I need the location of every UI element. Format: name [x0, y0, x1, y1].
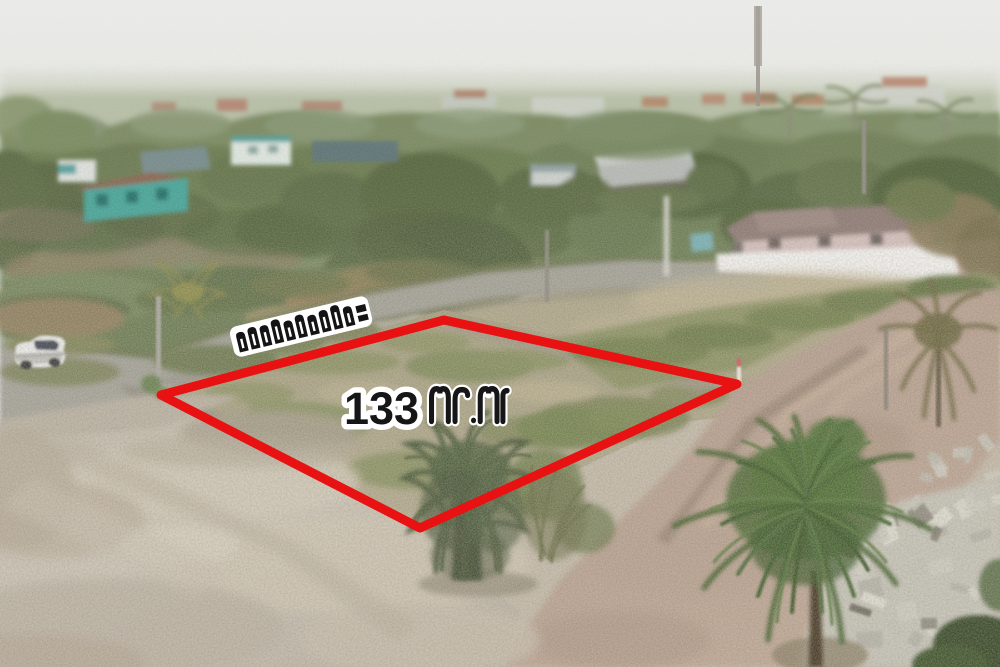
svg-text:133: 133 — [344, 383, 419, 434]
